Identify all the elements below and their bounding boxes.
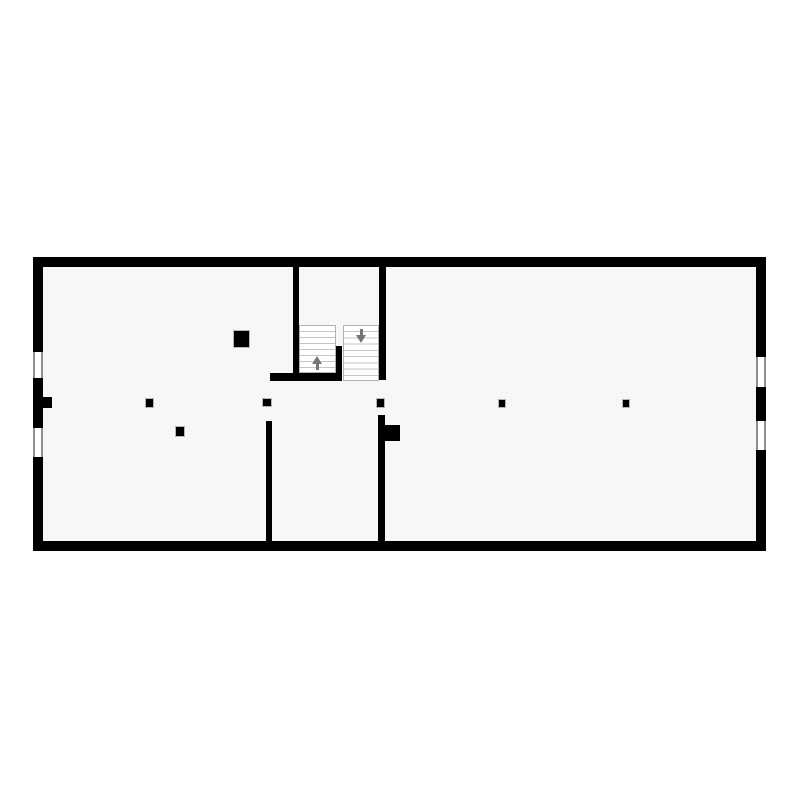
stair-arrow-up-head [312, 356, 322, 364]
column-row-4 [498, 399, 506, 408]
column-medium [175, 426, 185, 437]
stair-arrow-down-icon [355, 328, 367, 343]
stair-wall-left [293, 267, 299, 381]
window-left-upper [33, 352, 43, 378]
partition-wall-right [378, 415, 385, 541]
window-right-lower [756, 421, 766, 450]
window-right-upper [756, 357, 766, 387]
column-row-2 [262, 398, 272, 407]
column-large [233, 330, 250, 348]
column-row-5 [622, 399, 630, 408]
exterior-wall-top [33, 257, 766, 267]
stair-wall-right [379, 267, 386, 380]
exterior-wall-left [33, 257, 43, 551]
window-left-lower [33, 428, 43, 457]
floor-plan-canvas [0, 0, 800, 800]
partition-right-pier [385, 425, 400, 441]
column-row-1 [145, 398, 154, 408]
stair-arrow-up-stem [316, 364, 319, 370]
column-row-3 [376, 398, 385, 408]
partition-wall-left [266, 421, 272, 541]
stair-wall-bottom [270, 373, 342, 381]
exterior-wall-bottom [33, 541, 766, 551]
exterior-wall-right [756, 257, 766, 551]
stair-divider-wall [336, 346, 342, 381]
stair-arrow-up-icon [311, 355, 323, 370]
left-wall-pilaster [43, 397, 52, 408]
stair-arrow-down-head [356, 335, 366, 343]
